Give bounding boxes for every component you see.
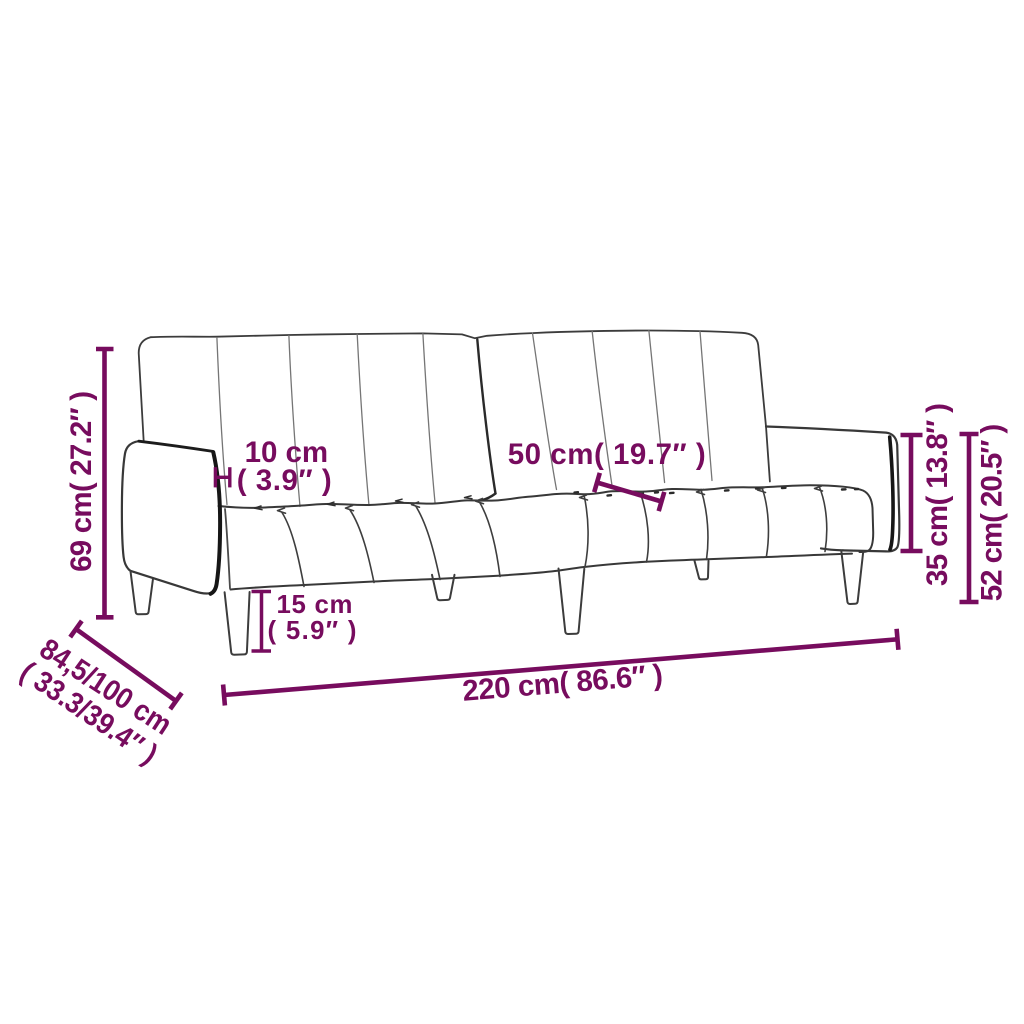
svg-text:( 5.9″ ): ( 5.9″ )	[268, 617, 357, 645]
svg-text:( 3.9″ ): ( 3.9″ )	[237, 464, 332, 497]
svg-text:35 cm( 13.8″ ): 35 cm( 13.8″ )	[921, 403, 954, 586]
svg-text:52 cm( 20.5″ ): 52 cm( 20.5″ )	[976, 424, 1009, 602]
svg-text:15 cm: 15 cm	[277, 591, 353, 619]
svg-text:50 cm( 19.7″ ): 50 cm( 19.7″ )	[508, 438, 706, 471]
svg-text:69 cm( 27.2″ ): 69 cm( 27.2″ )	[65, 391, 98, 572]
